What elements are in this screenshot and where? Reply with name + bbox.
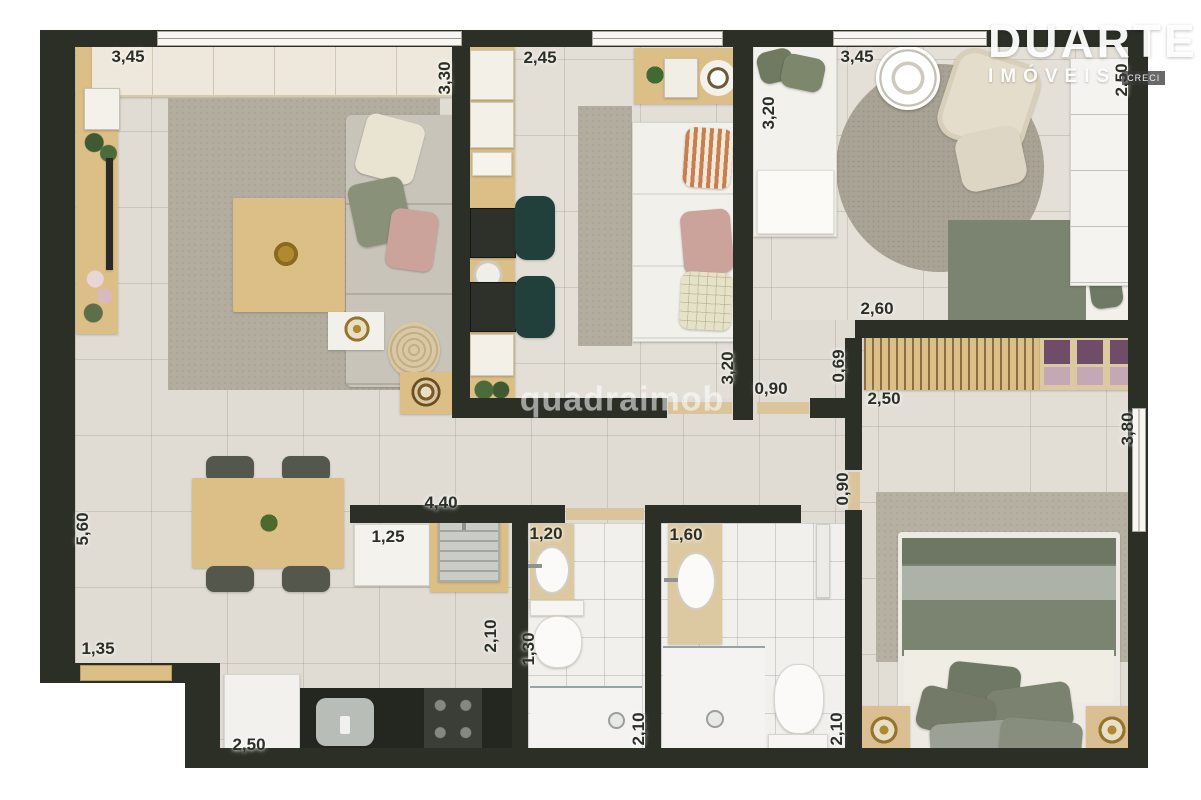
- wall: [528, 505, 565, 523]
- stove: [424, 688, 482, 750]
- dimension-label: 0,69: [829, 349, 849, 382]
- dimension-label: 1,30: [519, 632, 539, 665]
- wall: [661, 505, 801, 523]
- dining-chair: [206, 566, 254, 592]
- faucet-icon: [528, 564, 542, 568]
- tv: [106, 158, 113, 270]
- dimension-label: 2,50: [232, 735, 265, 755]
- sideboard-top: [92, 47, 460, 97]
- wall: [845, 510, 862, 768]
- dimension-label: 3,80: [1118, 412, 1138, 445]
- dimension-label: 2,10: [481, 619, 501, 652]
- tray-icon: [411, 377, 441, 407]
- plant-icon: [644, 64, 666, 86]
- bath2-toilet: [774, 664, 824, 734]
- bath1-sink: [534, 546, 570, 594]
- dimension-label: 3,30: [435, 61, 455, 94]
- dining-chair: [282, 566, 330, 592]
- dimension-label: 0,90: [754, 379, 787, 399]
- wall: [185, 748, 1148, 768]
- dimension-label: 1,25: [371, 527, 404, 547]
- window: [157, 31, 462, 46]
- bed-pillow-striped: [682, 126, 734, 189]
- dimension-label: 1,60: [669, 525, 702, 545]
- office-chair: [515, 196, 555, 260]
- bed-pillow-pink: [679, 208, 734, 276]
- door-leaf: [566, 508, 644, 520]
- console-book: [664, 58, 698, 98]
- dimension-label: 0,90: [833, 472, 853, 505]
- book-box: [84, 88, 120, 130]
- dining-decor-icon: [258, 512, 280, 534]
- sofa-pillow-pink: [384, 207, 440, 273]
- shelf-box: [470, 50, 514, 100]
- folded-clothes-light: [1077, 367, 1103, 385]
- bath1-toilet-tank: [530, 600, 584, 616]
- entry-door: [80, 665, 172, 681]
- outside-area: [0, 683, 185, 800]
- dimension-label: 4,40: [424, 493, 457, 513]
- shower-drain-icon: [706, 710, 724, 728]
- door-leaf: [757, 402, 809, 414]
- shelf-box: [470, 102, 514, 148]
- master-blanket-fold: [902, 538, 1116, 564]
- master-sage-strip: [902, 566, 1116, 600]
- laundry-sink: [438, 520, 500, 582]
- dimension-label: 3,45: [111, 47, 144, 67]
- folded-clothes: [1044, 340, 1070, 364]
- bath2-sink: [676, 552, 716, 610]
- dimension-label: 1,20: [529, 524, 562, 544]
- books-stack: [472, 152, 512, 176]
- folded-clothes-light: [1044, 367, 1070, 385]
- brand-badge: CRECI: [1122, 71, 1165, 85]
- faucet-icon: [664, 578, 678, 582]
- bath1-shower: [530, 686, 642, 752]
- wall: [40, 30, 75, 683]
- mirror-icon: [700, 60, 736, 96]
- monitor: [470, 208, 516, 258]
- basket-pouf: [388, 322, 440, 378]
- folded-clothes: [1077, 340, 1103, 364]
- dimension-label: 2,60: [860, 299, 893, 319]
- office-rug: [578, 106, 632, 346]
- nightstand-lamp-icon: [870, 716, 898, 744]
- brand-logo: DUARTE IMÓVEISCRECI: [988, 18, 1201, 88]
- daybed-cushion: [757, 170, 834, 234]
- faucet-icon: [340, 716, 350, 734]
- dimension-label: 2,50: [867, 389, 900, 409]
- dimension-label: 3,20: [759, 96, 779, 129]
- bath2-door-leaf: [816, 524, 830, 598]
- window: [592, 31, 723, 46]
- dimension-label: 5,60: [73, 512, 93, 545]
- dimension-label: 1,35: [81, 639, 114, 659]
- brand-subtitle: IMÓVEIS: [988, 66, 1116, 88]
- table-decor-icon: [272, 240, 300, 268]
- wall: [185, 663, 220, 768]
- shelf-box: [470, 334, 514, 376]
- dimension-label: 3,45: [840, 47, 873, 67]
- dimension-label: 2,10: [827, 712, 847, 745]
- flowers-icon: [80, 262, 118, 330]
- table-lamp-icon: [344, 316, 370, 342]
- bath1-toilet: [534, 616, 582, 668]
- office-chair: [515, 276, 555, 338]
- wall: [810, 398, 845, 418]
- nightstand-lamp-icon: [1098, 716, 1126, 744]
- window: [833, 31, 987, 46]
- round-side-table: [876, 46, 940, 110]
- dimension-label: 2,10: [629, 712, 649, 745]
- wall: [855, 320, 1145, 338]
- bed-pillow-plaid: [679, 271, 734, 332]
- wall: [1128, 30, 1148, 768]
- closet-hangers: [864, 336, 1040, 390]
- shower-drain-icon: [608, 712, 625, 729]
- bath2-shower: [663, 646, 765, 756]
- watermark: quadraimob: [520, 381, 725, 420]
- floor-plan: 3,453,302,453,203,452,503,202,600,690,90…: [0, 0, 1201, 800]
- brand-name: DUARTE: [988, 18, 1201, 64]
- monitor: [470, 282, 516, 332]
- dimension-label: 2,45: [523, 48, 556, 68]
